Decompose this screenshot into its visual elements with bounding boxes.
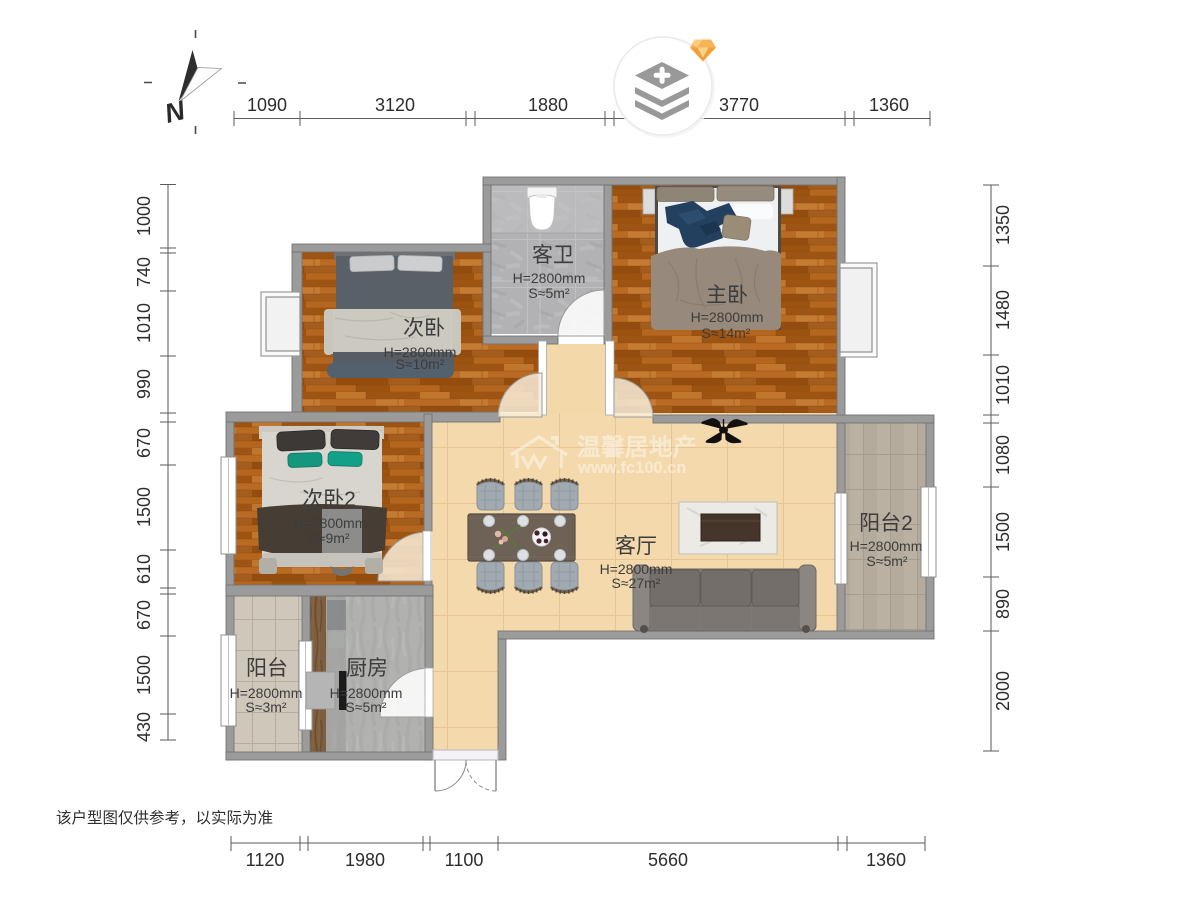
svg-text:890: 890: [993, 589, 1013, 619]
svg-text:1090: 1090: [247, 95, 287, 115]
svg-text:客厅: 客厅: [615, 535, 657, 558]
svg-text:1010: 1010: [993, 365, 1013, 405]
svg-text:1980: 1980: [345, 850, 385, 870]
svg-text:5660: 5660: [648, 850, 688, 870]
svg-text:1350: 1350: [993, 205, 1013, 245]
svg-text:990: 990: [134, 369, 154, 399]
svg-text:S≈5m²: S≈5m²: [866, 553, 907, 569]
svg-text:3120: 3120: [375, 95, 415, 115]
svg-text:610: 610: [134, 554, 154, 584]
svg-text:1360: 1360: [869, 95, 909, 115]
svg-text:1010: 1010: [134, 303, 154, 343]
svg-text:S≈10m²: S≈10m²: [396, 356, 445, 372]
svg-text:H=2800mm: H=2800mm: [850, 538, 923, 554]
svg-text:3770: 3770: [719, 95, 759, 115]
svg-text:S≈5m²: S≈5m²: [345, 699, 386, 715]
svg-text:1500: 1500: [134, 487, 154, 527]
svg-text:次卧: 次卧: [403, 317, 445, 340]
svg-text:1880: 1880: [528, 95, 568, 115]
svg-text:客卫: 客卫: [532, 244, 574, 267]
svg-text:S≈3m²: S≈3m²: [245, 699, 286, 715]
svg-text:H=2800mm: H=2800mm: [691, 309, 764, 325]
svg-text:1360: 1360: [866, 850, 906, 870]
svg-text:1120: 1120: [246, 850, 285, 870]
svg-text:1080: 1080: [993, 435, 1013, 475]
svg-text:740: 740: [134, 257, 154, 287]
svg-text:S≈9m²: S≈9m²: [308, 530, 349, 546]
svg-text:厨房: 厨房: [346, 657, 388, 680]
svg-text:670: 670: [134, 600, 154, 630]
svg-text:1480: 1480: [993, 290, 1013, 330]
svg-text:S≈14m²: S≈14m²: [702, 325, 751, 341]
svg-text:该户型图仅供参考，以实际为准: 该户型图仅供参考，以实际为准: [56, 809, 273, 827]
svg-text:2000: 2000: [993, 671, 1013, 711]
svg-text:S≈5m²: S≈5m²: [528, 285, 569, 301]
svg-text:温馨居地产: 温馨居地产: [577, 433, 697, 460]
svg-text:阳台: 阳台: [246, 657, 288, 680]
svg-text:主卧: 主卧: [706, 284, 748, 307]
svg-text:1000: 1000: [134, 196, 154, 236]
svg-text:1500: 1500: [993, 512, 1013, 552]
svg-text:www.fc100.cn: www.fc100.cn: [577, 459, 687, 477]
svg-text:1500: 1500: [134, 655, 154, 695]
svg-text:阳台2: 阳台2: [859, 512, 913, 535]
svg-text:次卧2: 次卧2: [302, 488, 356, 511]
svg-text:S≈27m²: S≈27m²: [612, 575, 661, 591]
svg-text:430: 430: [134, 712, 154, 742]
svg-text:1100: 1100: [445, 850, 484, 870]
svg-text:H=2800mm: H=2800mm: [294, 515, 367, 531]
svg-text:H=2800mm: H=2800mm: [513, 270, 586, 286]
svg-text:670: 670: [134, 428, 154, 458]
